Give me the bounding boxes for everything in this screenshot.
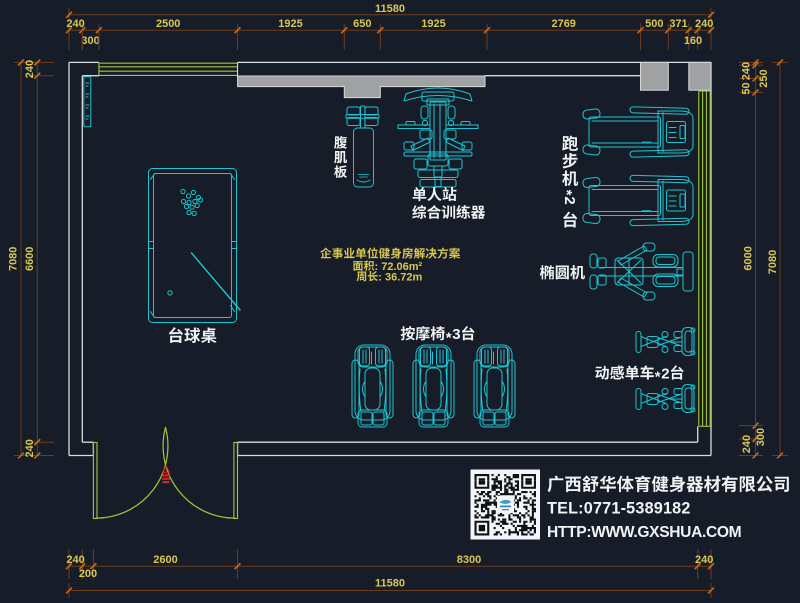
svg-text:7080: 7080: [8, 247, 20, 271]
svg-text:6000: 6000: [743, 246, 755, 270]
svg-text:200: 200: [79, 568, 97, 580]
svg-text:240: 240: [24, 60, 36, 78]
svg-text:300: 300: [755, 428, 767, 446]
svg-text:371: 371: [669, 18, 687, 30]
svg-text:240: 240: [66, 18, 84, 30]
svg-text:8300: 8300: [457, 554, 481, 566]
svg-text:*: *: [655, 369, 661, 386]
svg-text:*: *: [446, 329, 452, 346]
svg-text:6600: 6600: [24, 247, 36, 271]
svg-text:2769: 2769: [551, 18, 575, 30]
svg-text:HTTP:WWW.GXSHUA.COM: HTTP:WWW.GXSHUA.COM: [547, 524, 741, 541]
svg-text:: 36.72m: : 36.72m: [378, 271, 422, 283]
svg-text:650: 650: [353, 18, 371, 30]
svg-text:2: 2: [661, 365, 669, 382]
svg-text:240: 240: [741, 62, 753, 80]
svg-text:500: 500: [645, 18, 663, 30]
svg-text:*: *: [558, 190, 575, 196]
svg-text:TEL:0771-5389182: TEL:0771-5389182: [547, 500, 691, 518]
svg-text:240: 240: [24, 439, 36, 457]
svg-text:11580: 11580: [375, 3, 405, 15]
svg-text:240: 240: [695, 18, 713, 30]
svg-text:240: 240: [741, 435, 753, 453]
svg-text:50: 50: [741, 82, 753, 94]
svg-text:1925: 1925: [278, 18, 302, 30]
svg-text:160: 160: [684, 35, 702, 47]
svg-text:11580: 11580: [375, 578, 405, 590]
svg-text:3: 3: [452, 326, 460, 343]
svg-text:2: 2: [561, 196, 578, 204]
svg-text:240: 240: [695, 554, 713, 566]
svg-text:240: 240: [66, 554, 84, 566]
svg-text:1925: 1925: [421, 18, 445, 30]
svg-text:250: 250: [758, 69, 770, 87]
svg-text:7080: 7080: [767, 250, 779, 274]
svg-text:300: 300: [81, 35, 99, 47]
svg-text:2600: 2600: [153, 554, 177, 566]
svg-text:2500: 2500: [156, 18, 180, 30]
